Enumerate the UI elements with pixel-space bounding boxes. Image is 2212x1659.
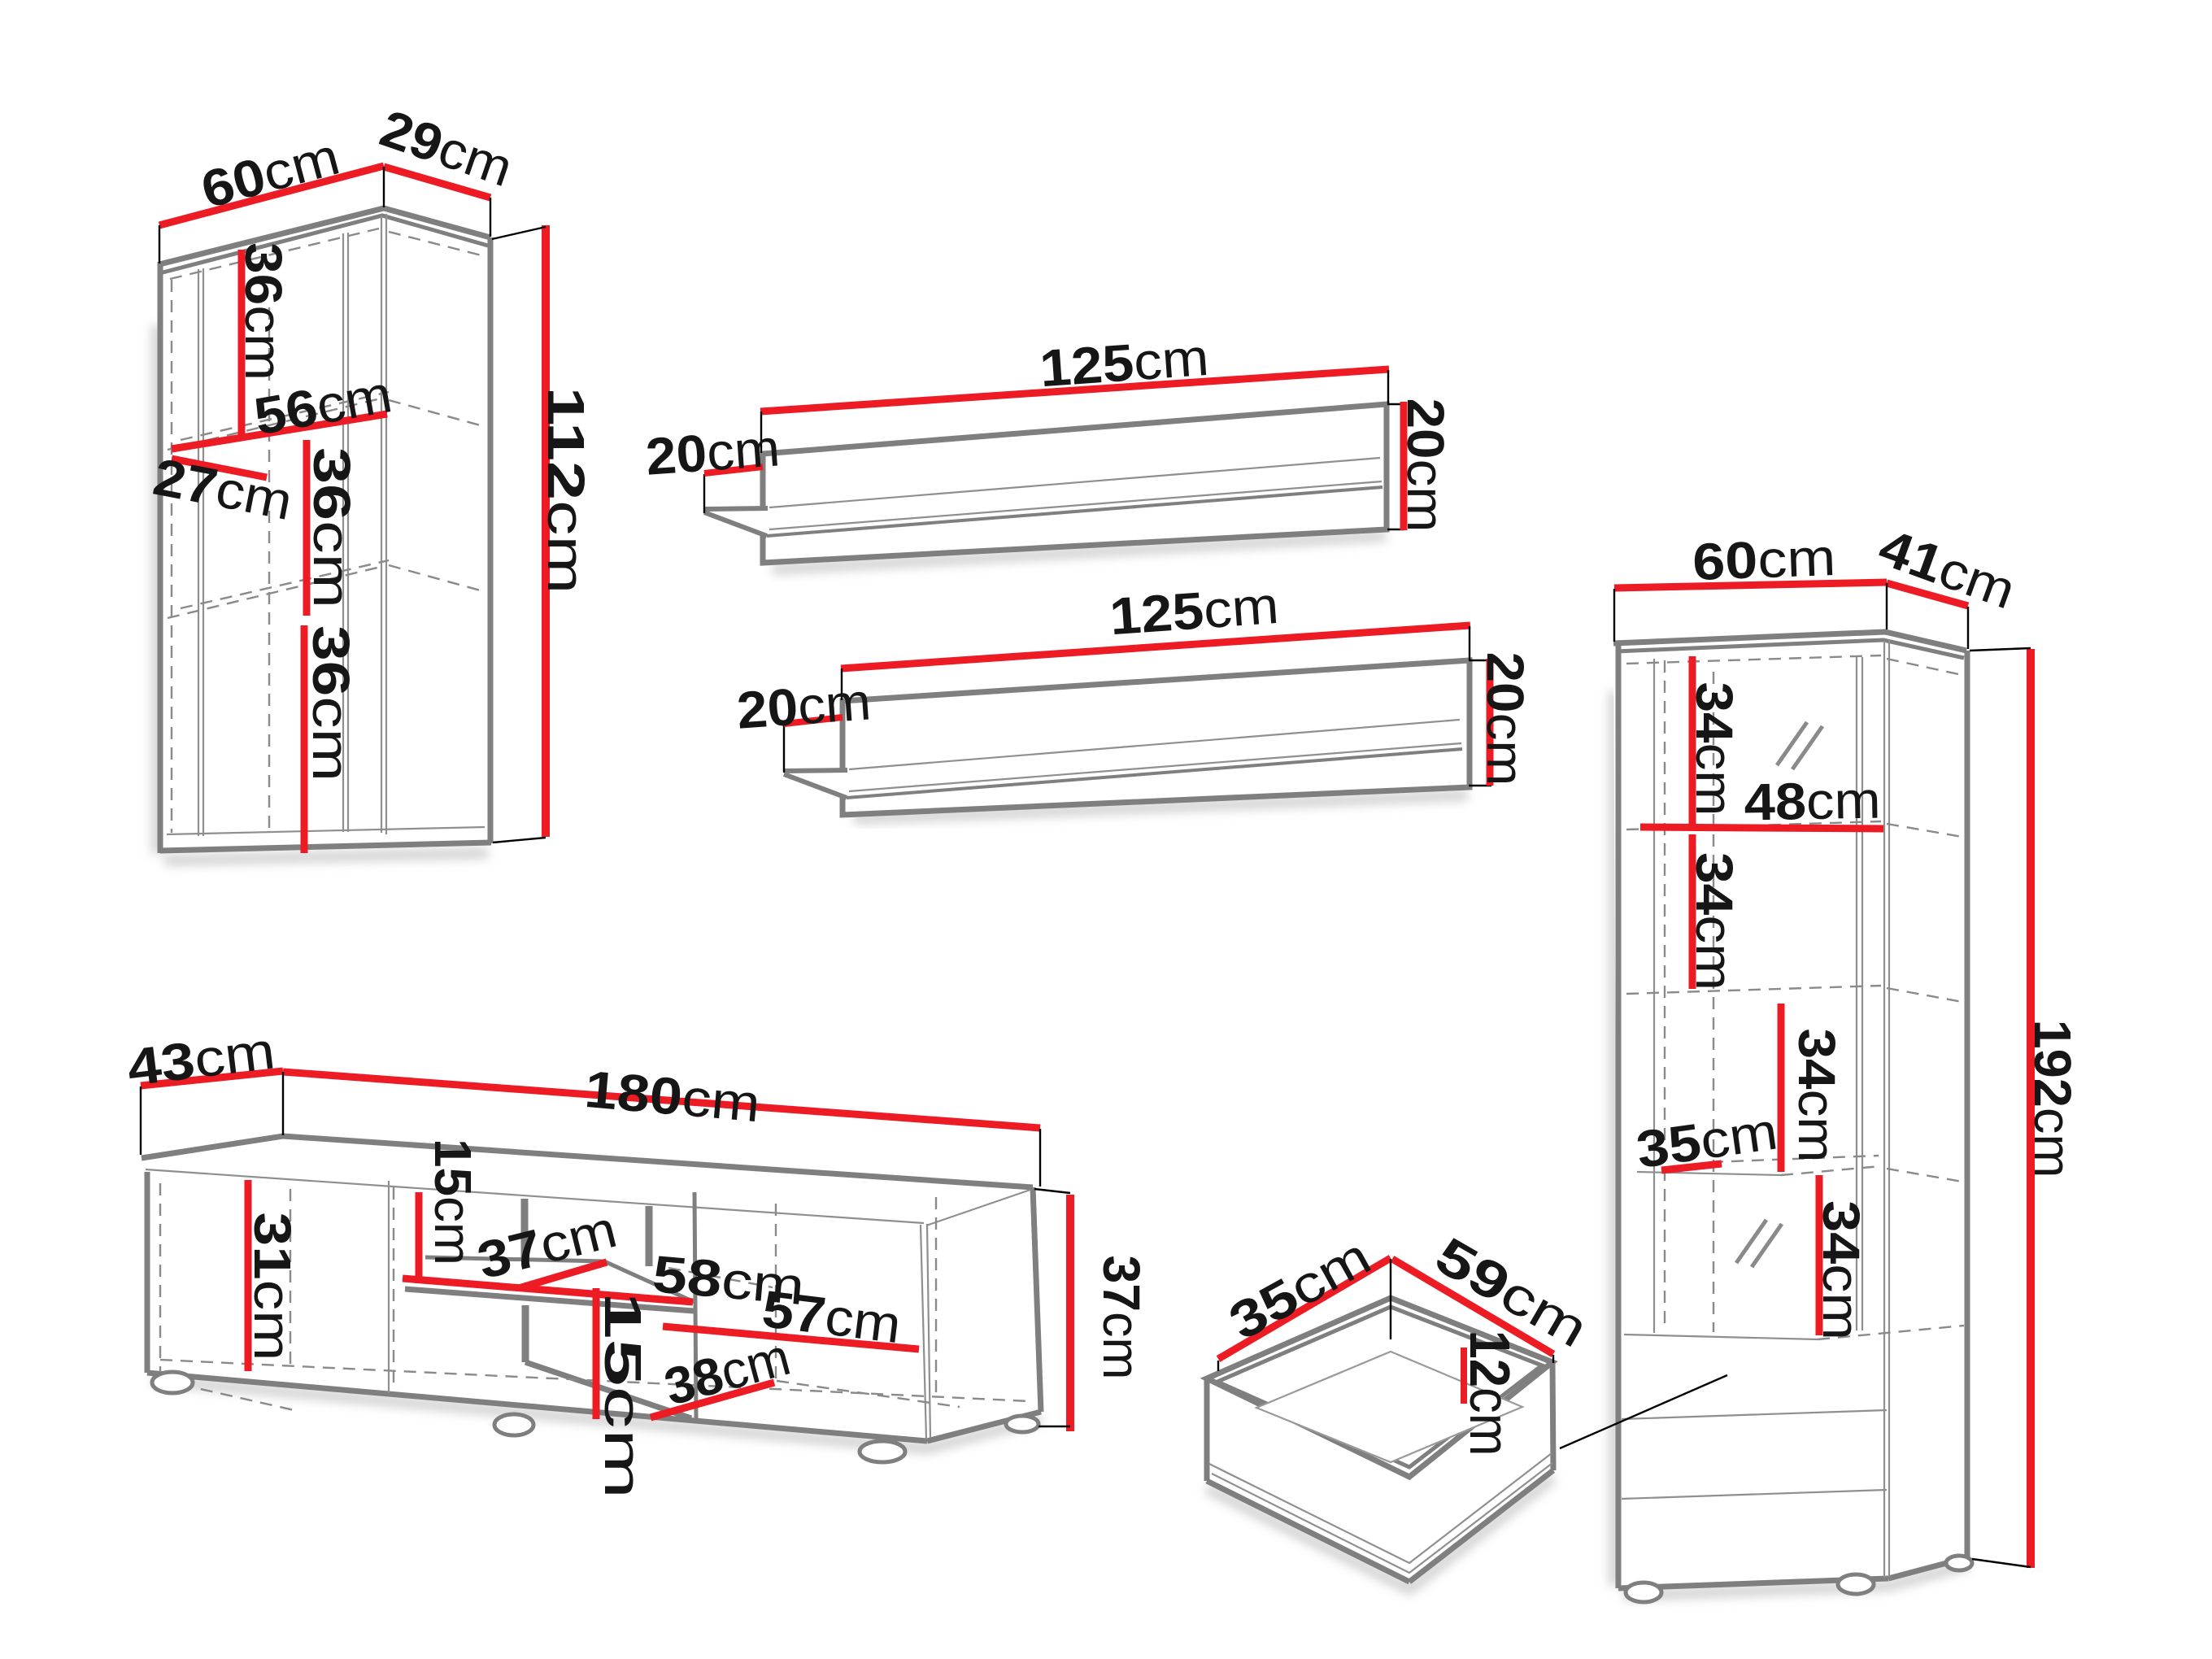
svg-text:12cm: 12cm (1458, 1330, 1522, 1457)
svg-text:60cm: 60cm (1692, 528, 1836, 591)
svg-text:20cm: 20cm (1476, 652, 1535, 786)
svg-text:125cm: 125cm (1038, 328, 1211, 398)
svg-text:34cm: 34cm (1685, 852, 1744, 991)
svg-text:15cm: 15cm (424, 1139, 482, 1265)
svg-text:20cm: 20cm (644, 418, 782, 486)
svg-text:20cm: 20cm (735, 672, 873, 739)
svg-text:125cm: 125cm (1108, 576, 1281, 646)
svg-text:34cm: 34cm (1787, 1029, 1846, 1163)
svg-text:36cm: 36cm (302, 625, 360, 782)
svg-text:31cm: 31cm (243, 1213, 302, 1361)
svg-text:36cm: 36cm (234, 242, 293, 381)
svg-text:36cm: 36cm (303, 447, 361, 608)
svg-text:34cm: 34cm (1685, 682, 1744, 816)
svg-text:34cm: 34cm (1812, 1200, 1870, 1340)
svg-text:37cm: 37cm (1092, 1256, 1151, 1380)
svg-text:192cm: 192cm (2023, 1020, 2082, 1178)
svg-text:20cm: 20cm (1396, 398, 1455, 533)
svg-text:48cm: 48cm (1744, 771, 1881, 832)
svg-text:15cm: 15cm (594, 1292, 652, 1500)
svg-text:112cm: 112cm (537, 387, 595, 594)
